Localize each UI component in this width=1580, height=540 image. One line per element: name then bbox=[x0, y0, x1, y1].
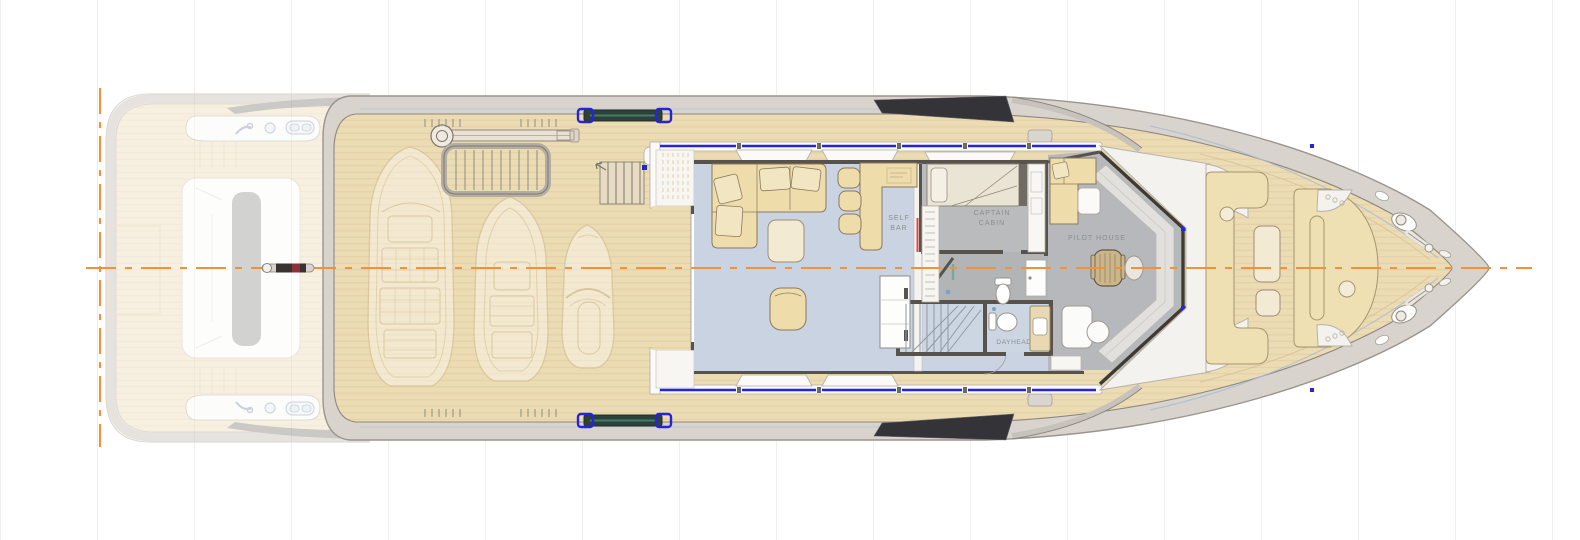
stern-passerelle-fitting bbox=[262, 264, 314, 273]
pilot-house-label: PILOT HOUSE bbox=[1068, 235, 1126, 242]
captain-bed bbox=[927, 164, 1027, 206]
chart-table bbox=[1062, 306, 1092, 348]
boarding-step-bottom bbox=[1028, 394, 1052, 406]
side-table bbox=[1078, 188, 1100, 214]
bow-table-large bbox=[1254, 226, 1280, 282]
captain-cabin-label-line1: CAPTAIN bbox=[974, 210, 1011, 217]
dayhead-vanity bbox=[1030, 306, 1050, 351]
yacht-deck-plan: SELF BAR CAPTAIN CABIN PILOT HOUSE DAYHE… bbox=[0, 0, 1580, 540]
jet-ski bbox=[562, 225, 614, 368]
dayhead-label: DAYHEAD bbox=[996, 339, 1031, 346]
self-bar-label-line1: SELF bbox=[888, 215, 910, 222]
mooring-station-top bbox=[186, 116, 320, 141]
self-bar-label-line2: BAR bbox=[890, 225, 907, 232]
cabin-cabinet bbox=[1028, 164, 1045, 252]
tender-rib bbox=[474, 197, 548, 381]
bar-stools bbox=[838, 168, 861, 234]
boarding-step-top bbox=[1028, 130, 1052, 142]
deck-plan-drawing: SELF BAR CAPTAIN CABIN PILOT HOUSE DAYHE… bbox=[0, 0, 1580, 540]
vestibule-lower bbox=[656, 350, 694, 388]
deck-locker-top bbox=[578, 109, 671, 122]
mooring-station-bottom bbox=[186, 395, 320, 420]
chart-stool bbox=[1087, 321, 1109, 343]
wardrobe bbox=[922, 206, 939, 302]
salon-armchair bbox=[770, 288, 806, 330]
coffee-table bbox=[768, 220, 804, 262]
captain-cabin-label-line2: CABIN bbox=[979, 220, 1005, 227]
bow-table-small bbox=[1256, 290, 1280, 316]
deck-locker-bottom bbox=[578, 414, 671, 427]
